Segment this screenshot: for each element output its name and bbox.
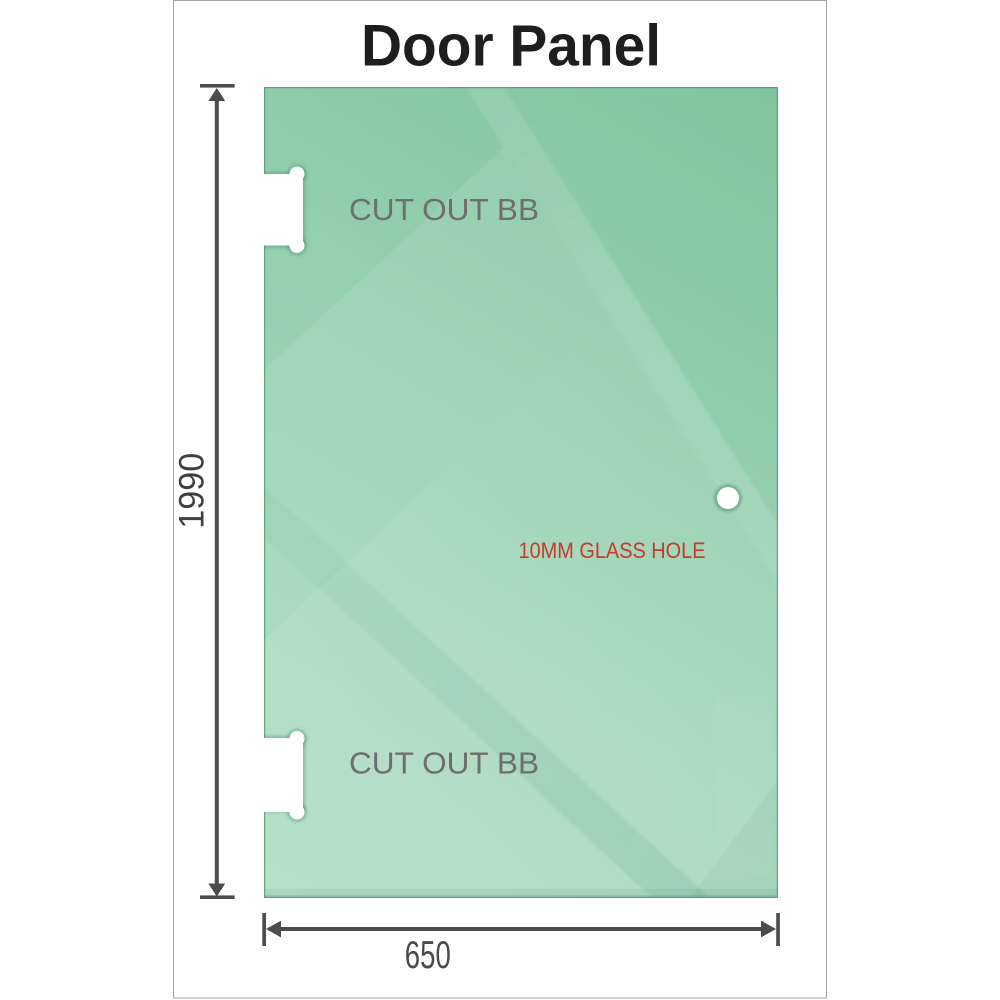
svg-text:CUT OUT BB: CUT OUT BB [349, 746, 539, 781]
svg-text:CUT OUT BB: CUT OUT BB [349, 192, 539, 227]
svg-text:Door Panel: Door Panel [361, 14, 661, 79]
svg-text:10MM GLASS HOLE: 10MM GLASS HOLE [519, 538, 706, 563]
svg-text:650: 650 [405, 934, 451, 977]
svg-text:1990: 1990 [173, 453, 212, 529]
